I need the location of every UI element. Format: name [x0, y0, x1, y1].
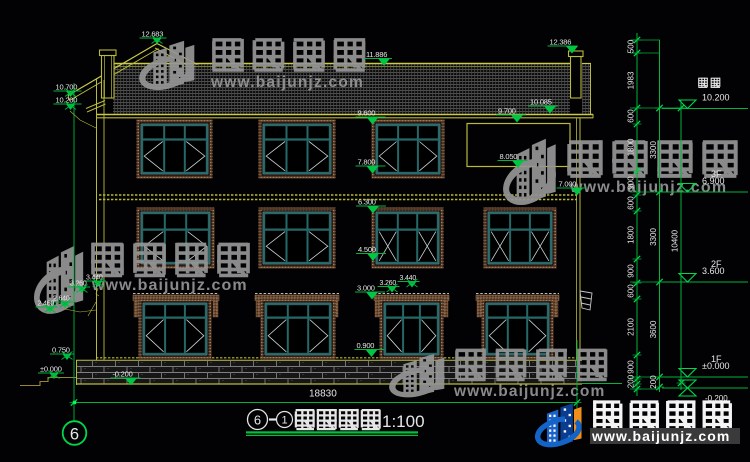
svg-text:600: 600	[627, 284, 636, 298]
svg-text:6.300: 6.300	[358, 198, 376, 207]
svg-text:3.260: 3.260	[380, 280, 397, 287]
svg-text:-0.200: -0.200	[113, 370, 133, 379]
svg-text:1800: 1800	[627, 138, 636, 156]
svg-text:600: 600	[627, 196, 636, 210]
svg-text:1800: 1800	[627, 226, 636, 244]
svg-text:11.886: 11.886	[366, 50, 387, 59]
svg-text:12.386: 12.386	[550, 38, 572, 47]
svg-text:1983: 1983	[627, 71, 636, 89]
svg-text:6: 6	[254, 413, 261, 428]
svg-text:10.085: 10.085	[530, 98, 552, 107]
svg-text:7.800: 7.800	[358, 158, 376, 167]
svg-text:3.600: 3.600	[702, 266, 725, 276]
svg-text:10400: 10400	[671, 229, 680, 252]
svg-text:7.000: 7.000	[559, 180, 577, 189]
svg-text:1: 1	[281, 415, 287, 427]
svg-text:18830: 18830	[309, 389, 337, 400]
svg-text:3600: 3600	[649, 320, 658, 338]
svg-text:3300: 3300	[649, 141, 658, 159]
svg-text:0.900: 0.900	[357, 341, 375, 350]
svg-text:0.750: 0.750	[52, 346, 70, 355]
svg-text:3.000: 3.000	[357, 284, 375, 293]
svg-text:6: 6	[70, 426, 79, 444]
svg-text:www.baijunjz.com: www.baijunjz.com	[91, 277, 248, 294]
svg-text:500: 500	[627, 39, 636, 53]
svg-text:8.050: 8.050	[500, 152, 518, 161]
svg-text:www.baijunjz.com: www.baijunjz.com	[453, 383, 605, 400]
svg-text:9.700: 9.700	[498, 107, 516, 116]
svg-text:600: 600	[627, 109, 636, 123]
svg-text:2.460: 2.460	[38, 301, 55, 308]
svg-text:200: 200	[649, 375, 658, 389]
svg-text:www.baijunjz.com: www.baijunjz.com	[591, 428, 730, 444]
svg-text:9.600: 9.600	[358, 109, 376, 118]
svg-text:3.440: 3.440	[400, 275, 417, 282]
svg-text:10.200: 10.200	[702, 93, 730, 103]
svg-text:900: 900	[627, 176, 636, 190]
svg-text:www.baijunjz.com: www.baijunjz.com	[210, 74, 364, 91]
svg-text:2100: 2100	[627, 318, 636, 336]
svg-text:900: 900	[627, 264, 636, 278]
svg-text:4.500: 4.500	[358, 245, 376, 254]
svg-text:1:100: 1:100	[382, 412, 425, 431]
svg-text:3300: 3300	[649, 228, 658, 246]
svg-text:900: 900	[627, 360, 636, 374]
svg-text:6.900: 6.900	[702, 176, 725, 186]
svg-text:±0.000: ±0.000	[702, 361, 729, 371]
svg-text:200: 200	[627, 374, 636, 388]
